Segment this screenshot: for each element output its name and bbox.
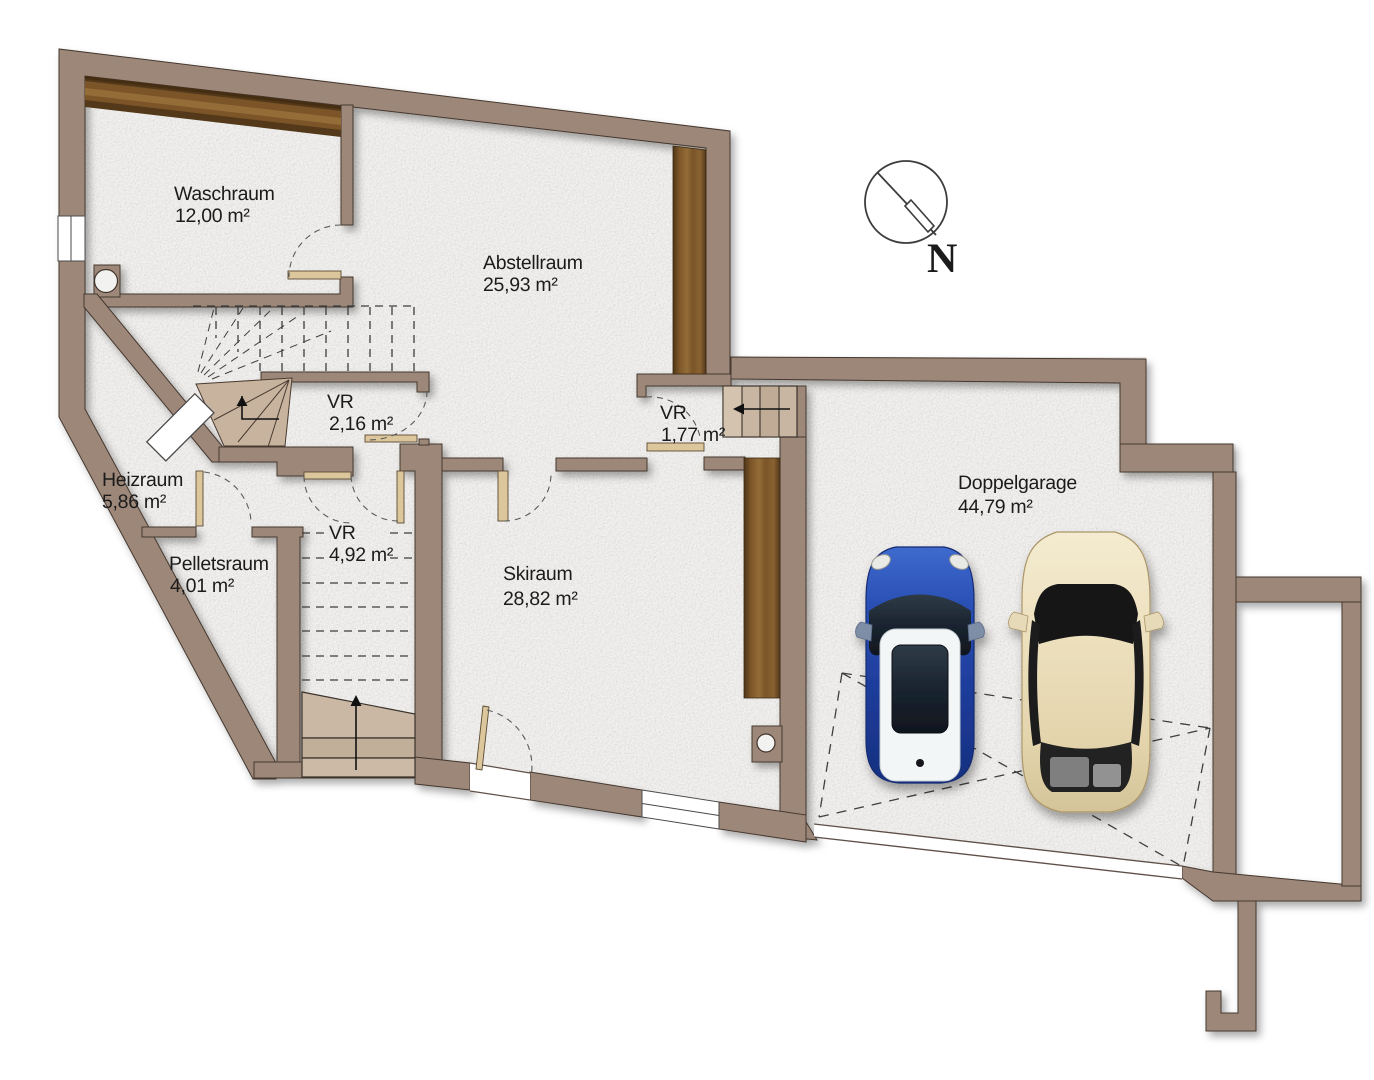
svg-text:Waschraum: Waschraum — [174, 183, 275, 205]
svg-text:Skiraum: Skiraum — [503, 563, 572, 585]
svg-text:VR: VR — [329, 522, 356, 544]
svg-text:Pelletsraum: Pelletsraum — [169, 553, 269, 575]
svg-text:Abstellraum: Abstellraum — [483, 252, 583, 274]
svg-text:4,01 m²: 4,01 m² — [170, 575, 235, 597]
svg-text:25,93 m²: 25,93 m² — [483, 274, 558, 296]
svg-text:1,77 m²: 1,77 m² — [661, 424, 726, 446]
svg-text:5,86 m²: 5,86 m² — [102, 491, 167, 513]
svg-text:2,16 m²: 2,16 m² — [329, 413, 394, 435]
svg-text:VR: VR — [660, 402, 687, 424]
svg-text:N: N — [927, 236, 957, 282]
svg-text:Heizraum: Heizraum — [102, 469, 183, 491]
svg-text:44,79 m²: 44,79 m² — [958, 496, 1033, 518]
svg-text:12,00 m²: 12,00 m² — [175, 205, 250, 227]
svg-text:28,82 m²: 28,82 m² — [503, 588, 578, 610]
svg-text:Doppelgarage: Doppelgarage — [958, 472, 1077, 494]
svg-text:VR: VR — [327, 391, 354, 413]
svg-text:4,92 m²: 4,92 m² — [329, 544, 394, 566]
